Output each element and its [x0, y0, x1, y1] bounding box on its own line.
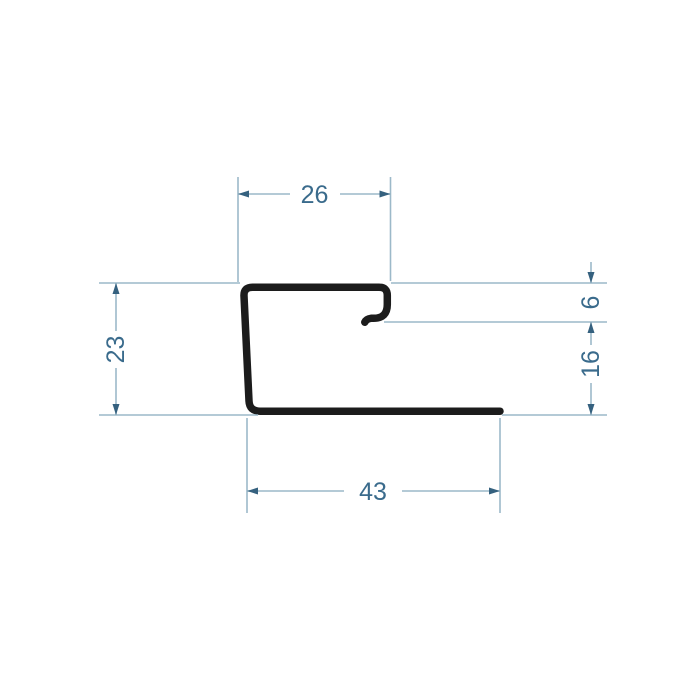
profile-outline — [244, 287, 500, 411]
dimension-left-height: 23 — [99, 283, 258, 415]
dimension-lower-right-height: 16 — [502, 322, 607, 415]
technical-drawing-canvas: 26 23 6 16 — [0, 0, 700, 700]
dimension-value-left-height: 23 — [102, 336, 130, 364]
arrowhead-right — [380, 191, 391, 198]
arrowhead-left — [238, 191, 249, 198]
dimension-value-lower-right-height: 16 — [577, 350, 605, 378]
dimension-hook-return: 6 — [384, 262, 607, 322]
arrowhead-up — [588, 322, 595, 333]
arrowhead-down — [113, 404, 120, 415]
dimension-value-bottom-width: 43 — [359, 478, 387, 506]
arrowhead-right — [489, 488, 500, 495]
arrowhead-down — [588, 404, 595, 415]
technical-drawing-page: 26 23 6 16 — [0, 0, 700, 700]
dimension-value-top-width: 26 — [301, 181, 329, 209]
arrowhead-up — [113, 283, 120, 294]
dimension-value-hook-return: 6 — [577, 296, 605, 310]
dimension-bottom-width: 43 — [247, 418, 500, 513]
arrowhead-left — [247, 488, 258, 495]
arrowhead-down — [588, 272, 595, 283]
dimension-top-width: 26 — [238, 177, 391, 282]
